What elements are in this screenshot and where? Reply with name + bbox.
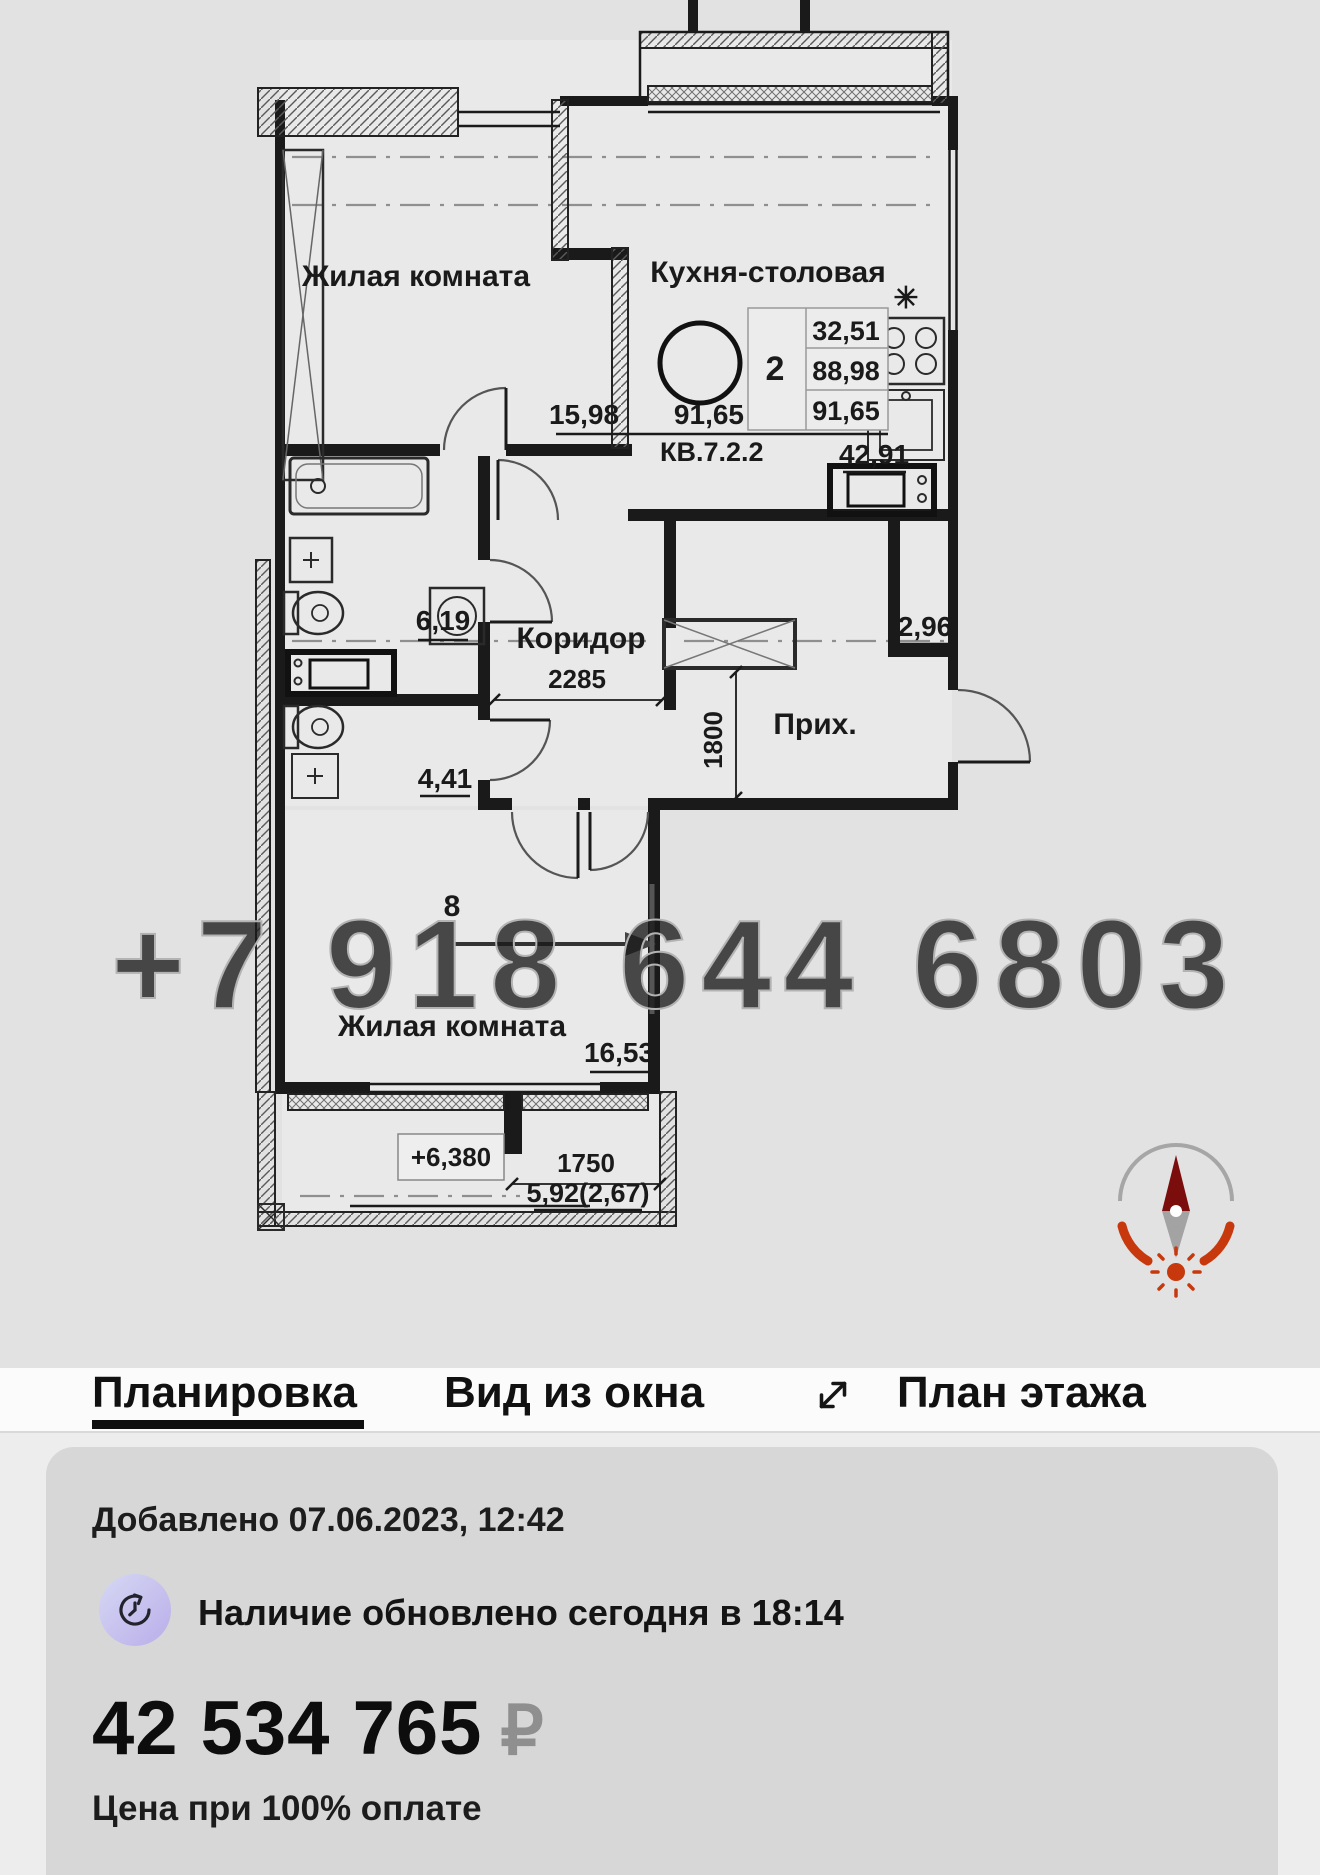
dim-corridor: 2285 xyxy=(548,664,606,694)
room-label-corridor: Коридор xyxy=(516,622,645,655)
price-value: 42 534 765 xyxy=(92,1685,482,1772)
availability-badge xyxy=(99,1574,171,1646)
room-label-hall: Прих. xyxy=(773,708,856,741)
listing-screen: Жилая комната Кухня-столовая 15,98 2 32,… xyxy=(0,0,1320,1875)
content-area: Добавлено 07.06.2023, 12:42 Наличие обно… xyxy=(0,1433,1320,1875)
area-balcony: 5,92(2,67) xyxy=(526,1178,649,1208)
stamp-area1: 32,51 xyxy=(812,316,880,346)
stamp-area2: 88,98 xyxy=(812,356,880,386)
added-date: Добавлено 07.06.2023, 12:42 xyxy=(92,1501,565,1540)
tab-layout[interactable]: Планировка xyxy=(92,1368,357,1418)
price-card: Добавлено 07.06.2023, 12:42 Наличие обно… xyxy=(46,1447,1278,1875)
balcony-level: +6,380 xyxy=(411,1142,491,1172)
stamp-total: 91,65 xyxy=(674,399,744,430)
clock-refresh-icon xyxy=(115,1590,155,1630)
stove-mark: ✳ xyxy=(893,282,918,315)
room-label-kitchen: Кухня-столовая xyxy=(650,256,885,289)
currency-symbol: ₽ xyxy=(500,1692,543,1771)
expand-icon[interactable] xyxy=(810,1372,856,1418)
compass-icon xyxy=(1120,1145,1232,1296)
price-row: 42 534 765 ₽ xyxy=(92,1685,544,1772)
dim-hall: 1800 xyxy=(698,711,728,769)
sun-icon xyxy=(1152,1248,1200,1296)
stamp-unit: КВ.7.2.2 xyxy=(660,437,764,467)
room-label-living1: Жилая комната xyxy=(301,260,530,293)
tab-floor-plan[interactable]: План этажа xyxy=(897,1368,1146,1418)
area-hall-closet: 2,96 xyxy=(898,611,953,642)
active-tab-underline xyxy=(92,1420,364,1429)
area-wc: 4,41 xyxy=(418,763,473,794)
tab-window-view[interactable]: Вид из окна xyxy=(444,1368,704,1418)
stamp-rooms: 2 xyxy=(766,350,785,388)
tab-bar: Планировка Вид из окна План этажа xyxy=(0,1368,1320,1433)
area-bath: 6,19 xyxy=(416,605,471,636)
price-note: Цена при 100% оплате xyxy=(92,1789,482,1829)
area-kitchen: 42,91 xyxy=(839,439,909,470)
dim-balcony: 1750 xyxy=(557,1148,615,1178)
watermark-phone: +7 918 644 6803 xyxy=(111,894,1240,1035)
area-living2: 16,53 xyxy=(584,1037,654,1068)
floorplan-svg: Жилая комната Кухня-столовая 15,98 2 32,… xyxy=(0,0,1320,1368)
stamp-area3: 91,65 xyxy=(812,396,880,426)
floorplan-viewer[interactable]: Жилая комната Кухня-столовая 15,98 2 32,… xyxy=(0,0,1320,1368)
area-living1: 15,98 xyxy=(549,399,619,430)
availability-text: Наличие обновлено сегодня в 18:14 xyxy=(198,1592,844,1634)
